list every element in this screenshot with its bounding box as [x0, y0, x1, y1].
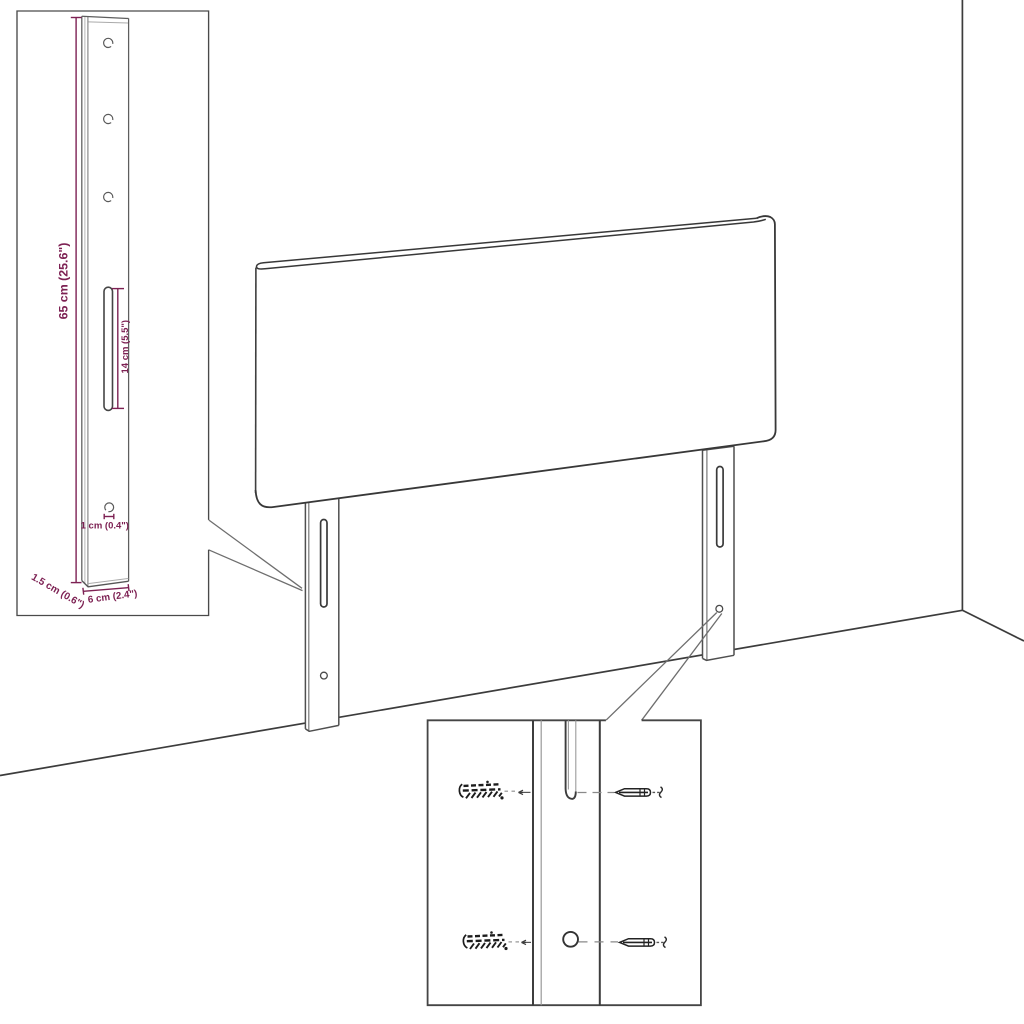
- svg-text:14 cm (5.5"): 14 cm (5.5"): [120, 320, 131, 374]
- svg-text:65 cm (25.6"): 65 cm (25.6"): [56, 243, 70, 320]
- svg-text:1 cm (0.4"): 1 cm (0.4"): [81, 520, 129, 531]
